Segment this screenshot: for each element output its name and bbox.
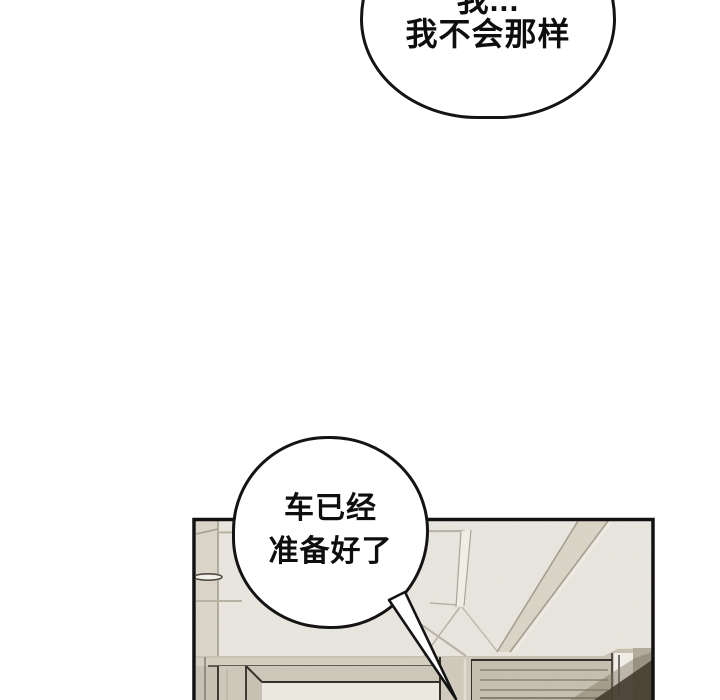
comic-page: 我...我不会那样 车已经准备好了 [0, 0, 720, 700]
speech-text-top: 我...我不会那样 [363, 0, 613, 51]
speech-bottom-line1: 车已经 [284, 492, 377, 525]
speech-bubble-bottom: 车已经准备好了 [232, 436, 429, 629]
speech-bottom-line2: 准备好了 [269, 535, 393, 568]
speech-top-line2: 我不会那样 [405, 16, 570, 52]
speech-text-bottom: 车已经准备好了 [235, 487, 426, 573]
